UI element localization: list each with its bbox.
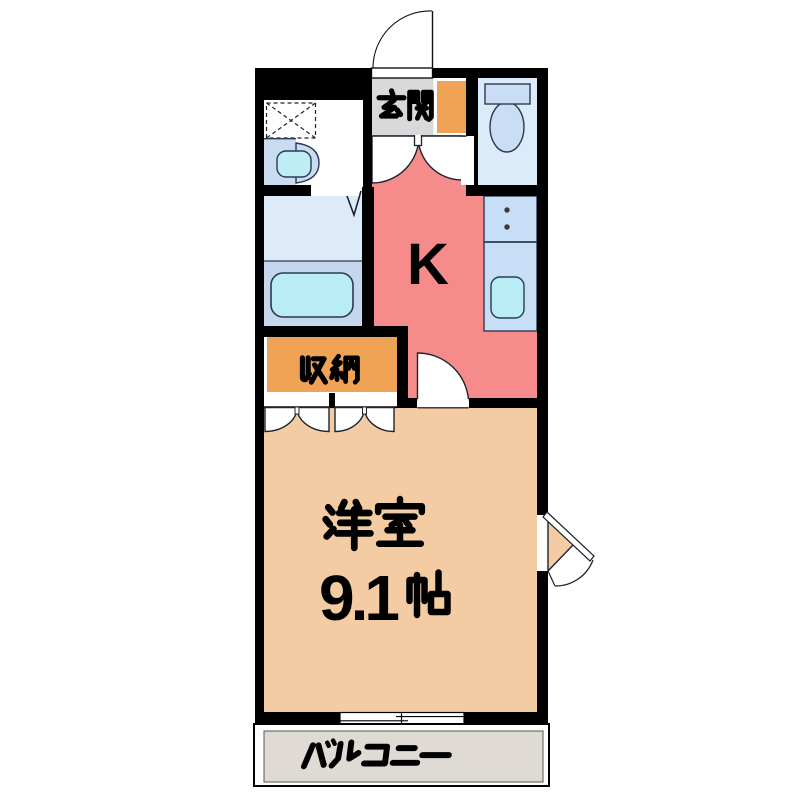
svg-text:9.1: 9.1 — [319, 562, 398, 634]
svg-text:K: K — [407, 232, 449, 297]
